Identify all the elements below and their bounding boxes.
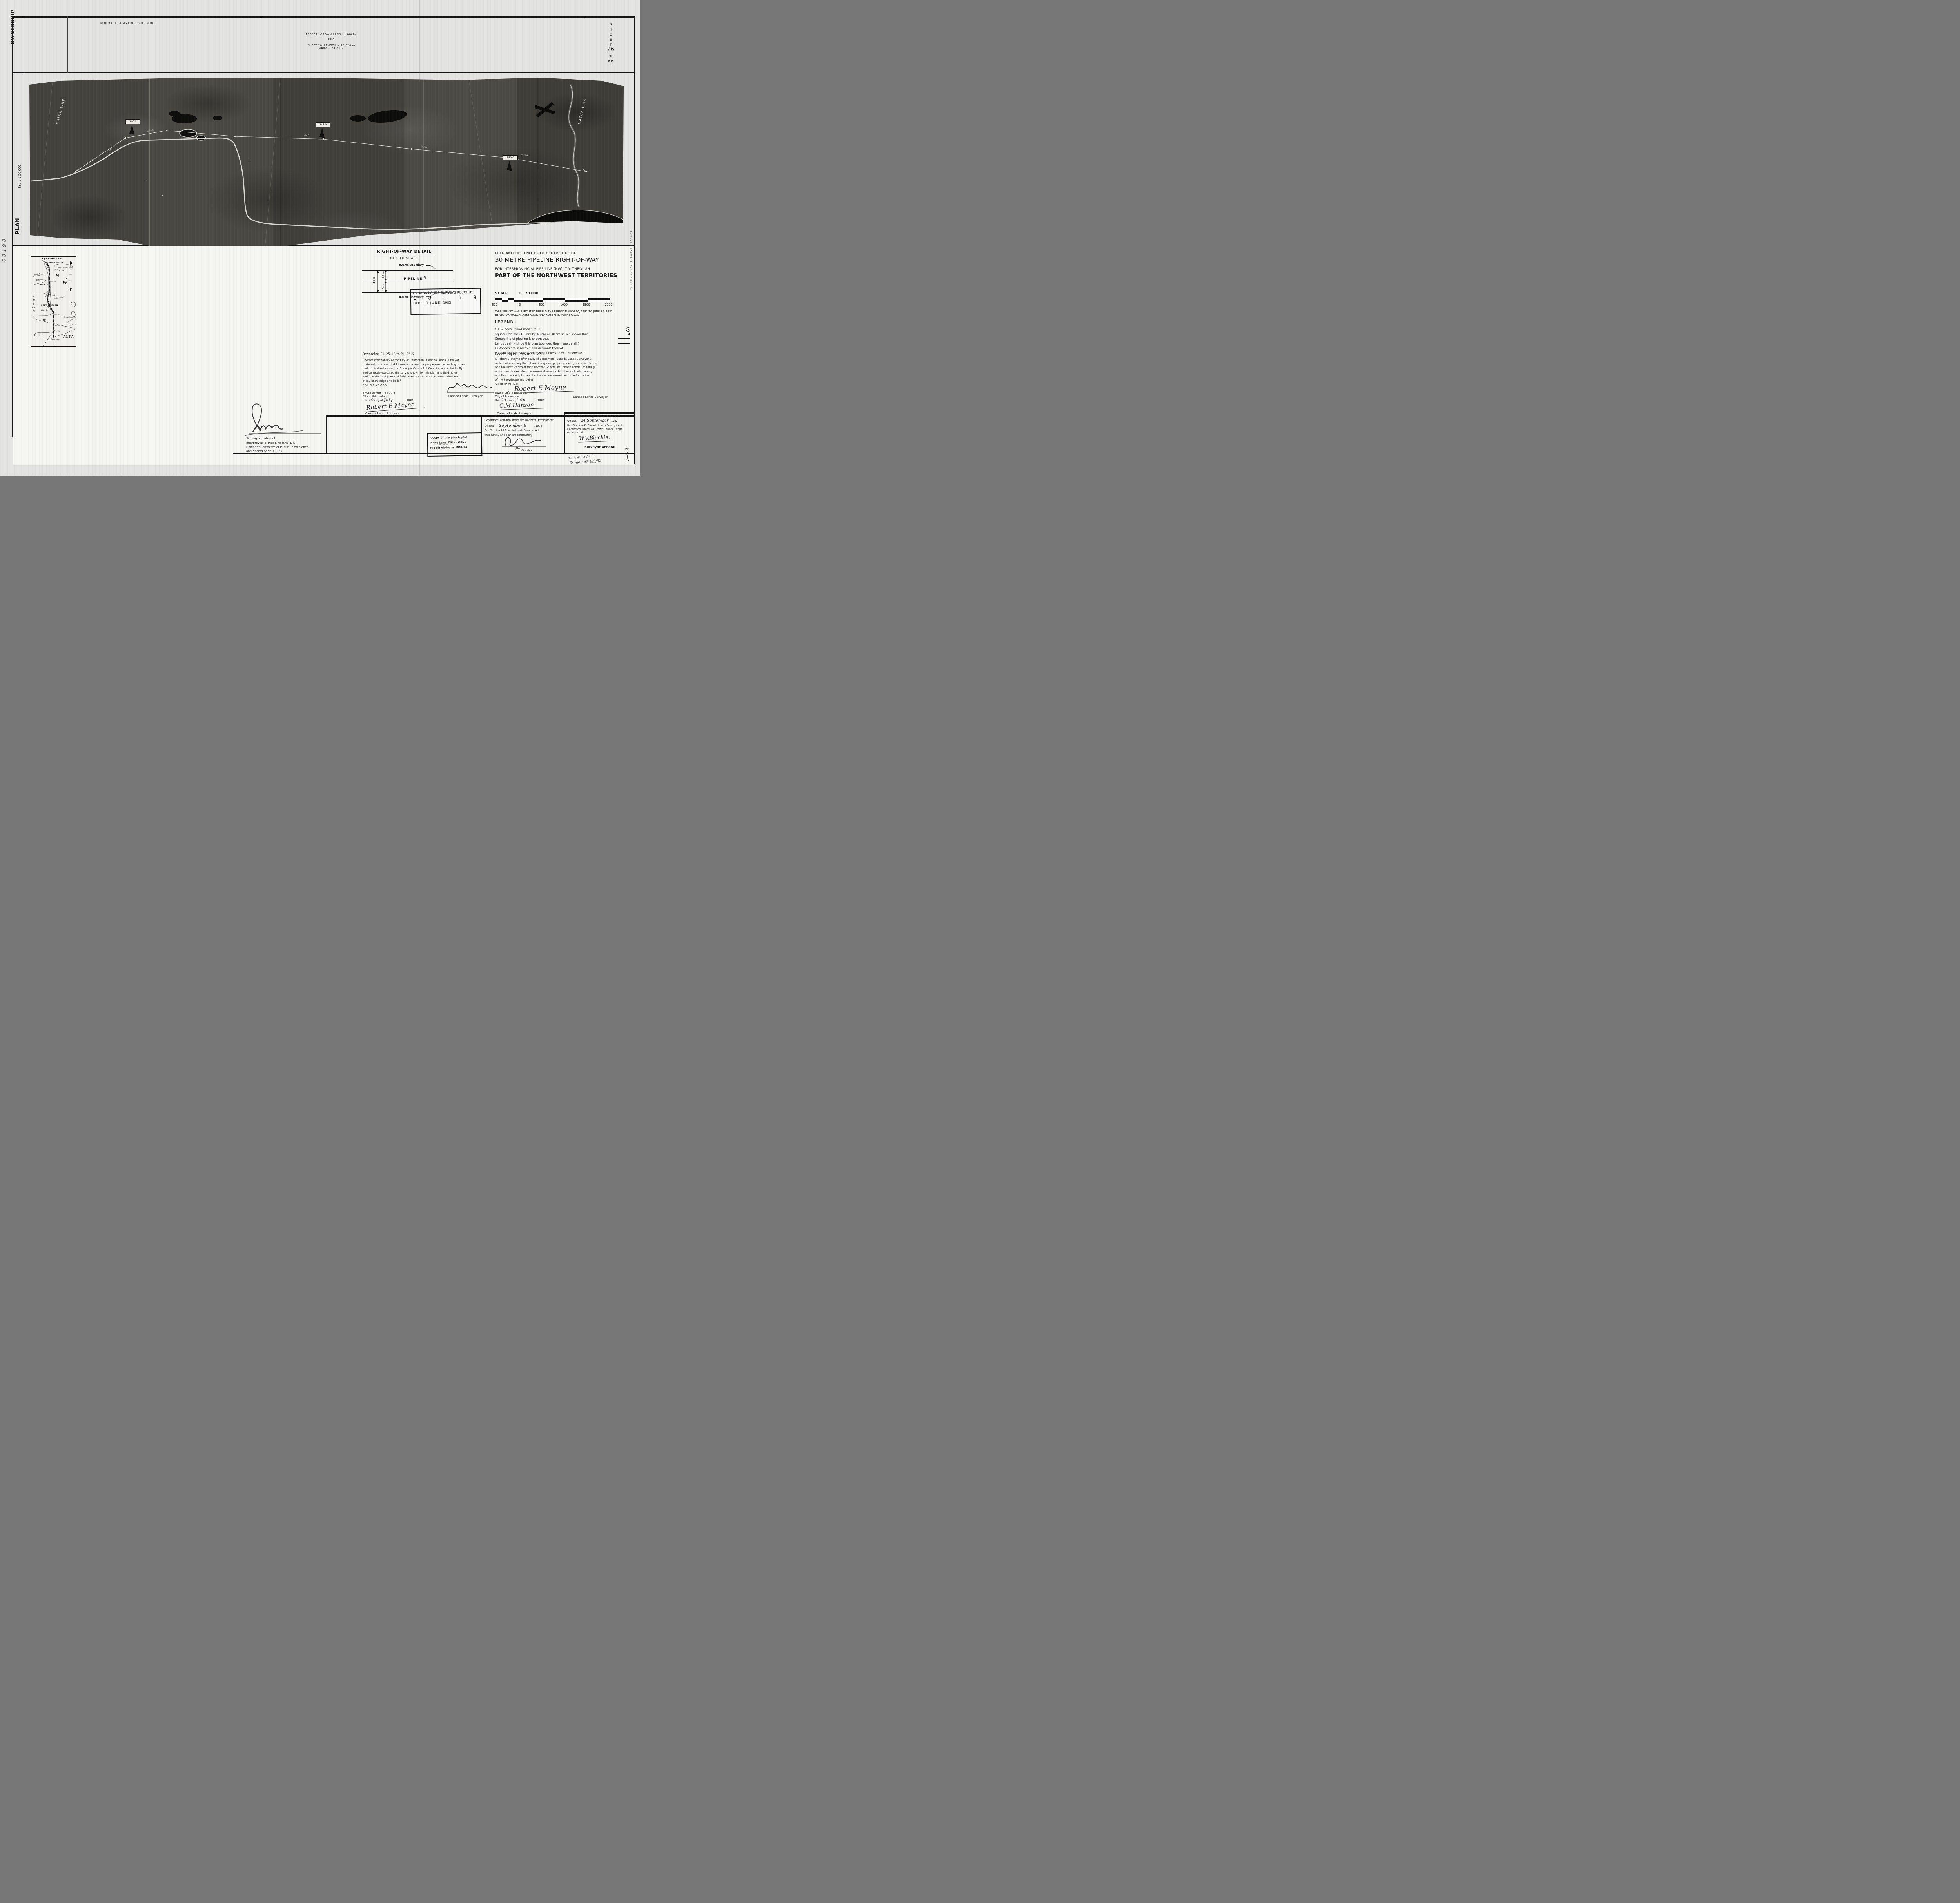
sheet-area: AREA = 41.5 ha bbox=[292, 47, 370, 50]
scale-tick: 1000 bbox=[560, 303, 568, 307]
survey-note-1: THIS SURVEY WAS EXECUTED DURING THE PERI… bbox=[495, 310, 624, 313]
legend-heading: LEGEND : bbox=[495, 320, 630, 324]
aerial-photo-mosaic: 340.0 345.0 350.0 MATCH LINE MATCH LINE … bbox=[29, 78, 624, 252]
sworn-this: this bbox=[363, 399, 368, 402]
fold-line-left bbox=[122, 0, 122, 476]
legend-item-text: Square Iron bars 13 mm by 45 cm or 30 cm… bbox=[495, 332, 628, 336]
iron-bar-icon bbox=[628, 333, 630, 335]
filed-stamp: A Copy of this plan is filed in the Land… bbox=[427, 432, 483, 457]
dept-indian-box: Department of Indian Affairs and Norther… bbox=[485, 419, 561, 453]
dept-energy-date-row: Ottawa 24 September , 1982 bbox=[567, 419, 634, 423]
km-marker-340: 340.0 bbox=[125, 119, 140, 124]
km-marker-350: 350.0 bbox=[503, 155, 518, 160]
affidavit-line: and the instructions of the Surveyor Gen… bbox=[495, 365, 620, 370]
dept-indian-name: Department of Indian Affairs and Norther… bbox=[485, 419, 561, 422]
key-plan-tick-20: 20 bbox=[54, 281, 56, 283]
title-line-2: 30 METRE PIPELINE RIGHT-OF-WAY bbox=[495, 256, 624, 263]
affidavit-line: make oath and say that I have in my own … bbox=[495, 361, 620, 366]
deponent-label-left: Canada Lands Surveyor bbox=[448, 394, 483, 398]
centre-line-icon bbox=[618, 338, 630, 339]
clsr-digit: 6 bbox=[413, 296, 416, 301]
dept-energy-title: Surveyor General bbox=[584, 445, 615, 449]
clsr-date-label: DATE bbox=[413, 301, 421, 305]
dept-energy-name: Department of Energy Mines and Resources bbox=[567, 415, 634, 418]
key-plan-liard: Liard R. bbox=[41, 309, 48, 311]
cls-post-icon bbox=[626, 327, 630, 332]
dept-city: Ottawa bbox=[567, 419, 577, 423]
centreline-symbol-icon: CL bbox=[423, 276, 427, 280]
affidavit-line: make oath and say that I have in my own … bbox=[363, 363, 487, 367]
key-plan-title: KEY PLAN n.t.s. bbox=[42, 258, 63, 261]
key-plan-wrigley: WRIGLEY bbox=[40, 284, 50, 286]
sheet-total: 55 bbox=[608, 60, 613, 65]
affidavit-line: of my knowledge and belief bbox=[495, 378, 620, 382]
divider-label-column bbox=[24, 16, 24, 246]
affidavit-heading: Regarding P.I. 25-18 to P.I. 26-6 bbox=[363, 352, 487, 356]
sheet-length: SHEET 26: LENGTH = 13 820 m bbox=[292, 44, 370, 47]
clsr-digit: 8 bbox=[428, 296, 431, 301]
dept-energy-re: Re : Section 43 Canada Lands Surveys Act bbox=[567, 424, 634, 427]
sheet-word: SHEET bbox=[609, 23, 613, 48]
legend-item-text: Centre line of pipeline is shown thus bbox=[495, 337, 618, 341]
dim-30m: 30m bbox=[372, 277, 376, 284]
affidavit-line: and that the said plan and field notes a… bbox=[495, 374, 620, 378]
clsr-date-year: 1982 bbox=[443, 301, 451, 305]
dept-indian-title: Minister bbox=[521, 448, 532, 452]
scale-ticks: 500 0 500 1000 1500 2000 bbox=[495, 303, 624, 307]
clsr-digit: 9 bbox=[458, 295, 461, 301]
key-plan-fort-simpson: FORT SIMPSON bbox=[41, 305, 58, 307]
mineral-claims-note: MINERAL CLAIMS CROSSED - NONE bbox=[100, 22, 156, 25]
bounded-line-icon bbox=[618, 343, 630, 345]
legend-item-text: C.L.S. posts found shown thus bbox=[495, 328, 626, 331]
pipeline-label: PIPELINE CL bbox=[404, 276, 427, 281]
filed-value: filed bbox=[461, 436, 467, 439]
pencil-ok-flourish bbox=[622, 451, 632, 463]
filed-text: Office bbox=[458, 441, 466, 444]
key-plan-tick-50: 50 bbox=[58, 325, 60, 327]
row-boundary-top-label: R.O.W. Boundary bbox=[399, 263, 424, 267]
key-plan-great-bear: Great Bear Lake bbox=[57, 267, 72, 269]
right-edge-stamp: CANADA LANDS SURVEYS RECORDS bbox=[630, 230, 633, 290]
scale-tick: 500 bbox=[492, 303, 497, 307]
sworn-day-handwritten: 20 bbox=[501, 398, 506, 403]
scale-tick: 1500 bbox=[583, 303, 590, 307]
bottom-strip-divider-2 bbox=[564, 412, 565, 454]
ownership-label: OWNERSHIP bbox=[10, 9, 15, 44]
row-detail-subtitle: NOT TO SCALE bbox=[353, 256, 456, 260]
dept-energy-box: Department of Energy Mines and Resources… bbox=[567, 415, 634, 453]
sworn-month-handwritten: July bbox=[384, 398, 393, 403]
deponent-label-right: Canada Lands Surveyor bbox=[573, 395, 608, 399]
scale-bar bbox=[495, 298, 610, 302]
sworn-this: this bbox=[495, 399, 500, 402]
affidavit-heading: Regarding P.I. 26-6 to P.I. 27-1 bbox=[495, 352, 620, 356]
sheet-number: 26 bbox=[607, 46, 614, 53]
plan-label: PLAN bbox=[15, 218, 21, 234]
survey-annotation: 754.8 bbox=[304, 135, 309, 137]
affidavit-line: and the instructions of the Surveyor Gen… bbox=[363, 366, 487, 371]
crown-land-line: FEDERAL CROWN LAND - 1544 ha bbox=[292, 33, 370, 36]
key-plan-tick-10: 10 bbox=[54, 269, 56, 271]
title-line-1: PLAN AND FIELD NOTES OF CENTRE LINE OF bbox=[495, 252, 624, 256]
dept-date-handwritten: September 9 bbox=[499, 423, 527, 428]
key-plan-great-slave: Great Slave L. bbox=[64, 316, 76, 318]
scale-tick: 2000 bbox=[605, 303, 612, 307]
dept-indian-re: Re : Section 43 Canada Lands Surveys Act bbox=[485, 429, 561, 432]
filed-stamp-line3: at Yellowknife as 1559-26 bbox=[430, 445, 480, 451]
minister-signature bbox=[500, 434, 547, 448]
deponent-signature-left bbox=[446, 381, 495, 394]
scale-label: SCALE bbox=[495, 292, 508, 296]
dept-year: , 1982 bbox=[610, 419, 618, 423]
bottom-strip-left-edge bbox=[326, 415, 327, 454]
key-plan-bc: B C bbox=[34, 334, 42, 337]
key-plan-tick-30: 30 bbox=[53, 294, 55, 296]
dept-city: Ottawa bbox=[485, 425, 494, 428]
signing-block: Signing on behalf of Interprovincial Pip… bbox=[246, 437, 309, 454]
affidavit-line: and that the said plan and field notes a… bbox=[363, 375, 487, 379]
clsr-date-month: JUNE bbox=[430, 301, 441, 305]
sheet-of: of bbox=[609, 54, 612, 58]
affidavit-line: and correctly executed the survey shown … bbox=[495, 370, 620, 374]
sworn-day-handwritten: 19 bbox=[368, 398, 374, 403]
sworn-dayof: day of bbox=[507, 399, 515, 402]
key-plan-tick-1: 1 bbox=[42, 260, 43, 262]
commissioner-label-left: Canada Lands Surveyor bbox=[365, 412, 400, 415]
dept-year: , 1982 bbox=[534, 425, 542, 428]
key-plan-alta: ALTA bbox=[63, 335, 74, 339]
legend-item-text: Lands dealt with by this plan bounded th… bbox=[495, 342, 618, 345]
clsr-digit: 8 bbox=[473, 295, 476, 301]
scale-ratio: 1 : 20 000 bbox=[519, 292, 539, 296]
scale-block: SCALE 1 : 20 000 500 0 500 1000 1500 200… bbox=[495, 292, 624, 316]
key-plan: KEY PLAN n.t.s. NORMAN WELLS Great Bear … bbox=[31, 256, 76, 347]
legend-item-text: Distances are in metres and decimals the… bbox=[495, 346, 630, 350]
divider-header-3 bbox=[586, 16, 586, 73]
sworn-dayof: day of bbox=[374, 399, 383, 402]
key-plan-letter-w: W bbox=[62, 280, 67, 285]
energy-box-topline bbox=[564, 412, 635, 414]
border-top bbox=[12, 16, 635, 18]
dept-energy-note1: Confirmed insofar as Crown Canada Lands bbox=[567, 428, 634, 431]
dept-energy-note2: are affected . bbox=[567, 431, 634, 434]
key-plan-letter-n: N bbox=[55, 273, 59, 278]
survey-note-2: BY VICTOR WOLCHANSKY C.L.S. AND ROBERT E… bbox=[495, 313, 624, 316]
signing-line: Interprovincial Pipe Line (NW) LTD. bbox=[246, 441, 309, 445]
divider-header-2 bbox=[263, 16, 263, 73]
fold-line-right bbox=[419, 0, 420, 476]
border-right bbox=[634, 16, 635, 464]
scale-tick: 500 bbox=[539, 303, 544, 307]
affidavit-line: and correctly executed the survey shown … bbox=[363, 371, 487, 375]
clsr-date-day: 18 bbox=[424, 301, 428, 305]
row-detail-title: RIGHT-OF-WAY DETAIL bbox=[353, 249, 456, 254]
dim-15m-top: 15 m bbox=[382, 271, 385, 278]
title-block: PLAN AND FIELD NOTES OF CENTRE LINE OF 3… bbox=[495, 252, 624, 279]
key-plan-tick-55: 55 bbox=[58, 330, 60, 332]
title-line-4: PART OF THE NORTHWEST TERRITORIES bbox=[495, 272, 624, 279]
filed-text: A Copy of this plan is bbox=[430, 436, 461, 439]
dim-15m-bottom: 15 m bbox=[382, 284, 385, 291]
affidavit-line: I, Robert E. Mayne of the City of Edmont… bbox=[495, 357, 620, 361]
left-edge-number: 68198 bbox=[2, 237, 7, 262]
parcel-number: 002 bbox=[292, 38, 370, 41]
border-header-divider bbox=[12, 72, 635, 73]
clsr-digit: 1 bbox=[443, 295, 446, 301]
affidavit-right: Regarding P.I. 26-6 to P.I. 27-1 I, Robe… bbox=[495, 352, 620, 386]
title-line-3: FOR INTERPROVINCIAL PIPE LINE (NW) LTD. … bbox=[495, 267, 624, 271]
company-signature bbox=[244, 403, 338, 436]
commissioner-label-right: Canada Lands Surveyor bbox=[497, 412, 532, 415]
row-boundary-top-arrow bbox=[426, 264, 437, 270]
survey-plan-sheet: OWNERSHIP MINERAL CLAIMS CROSSED - NONE … bbox=[0, 0, 640, 476]
key-plan-tick-40: 40 bbox=[58, 314, 60, 316]
clsr-stamp: CANADA LANDS SURVEYS RECORDS 6 8 1 9 8 D… bbox=[410, 288, 481, 315]
filed-office-name: Land Titles bbox=[439, 441, 457, 445]
signing-line: Holder of Certificate of Public Convenie… bbox=[246, 445, 309, 450]
filed-text: in the bbox=[430, 441, 438, 444]
signing-line: Signing on behalf of bbox=[246, 437, 309, 441]
divider-header-1 bbox=[67, 16, 68, 73]
affidavit-line: I, Victor Wolchansky of the City of Edmo… bbox=[363, 358, 487, 363]
dept-date-handwritten: 24 September bbox=[581, 419, 609, 423]
legend: LEGEND : C.L.S. posts found shown thus S… bbox=[495, 320, 630, 355]
key-plan-yukon: YUKON bbox=[33, 296, 35, 314]
dept-indian-date-row: Ottawa September 9 , 1982 bbox=[485, 423, 561, 428]
row-detail-title-underline bbox=[373, 255, 435, 255]
plan-scale-label: Scale 1:20,000 bbox=[18, 165, 22, 188]
key-plan-zama: Zama Lake bbox=[51, 338, 60, 340]
clsr-stamp-date-row: DATE 18 JUNE 1982 bbox=[413, 301, 478, 305]
photo-linework bbox=[29, 78, 624, 252]
key-plan-norman-wells: NORMAN WELLS bbox=[45, 262, 64, 264]
crown-land-note: FEDERAL CROWN LAND - 1544 ha 002 SHEET 2… bbox=[292, 33, 370, 50]
key-plan-letter-t: T bbox=[69, 287, 72, 292]
surveyor-general-signature: W.V.Blackie. bbox=[578, 434, 613, 442]
scale-tick: 0 bbox=[519, 303, 521, 307]
km-marker-345: 345.0 bbox=[316, 122, 330, 127]
